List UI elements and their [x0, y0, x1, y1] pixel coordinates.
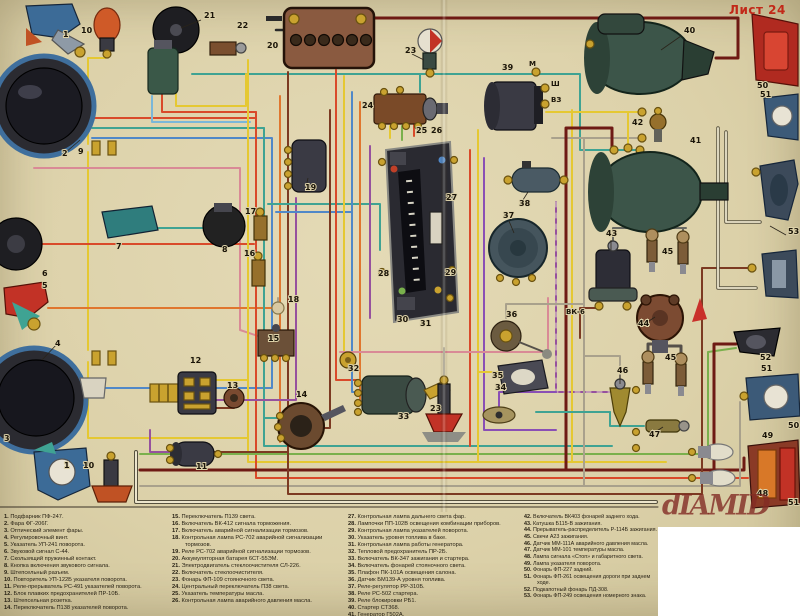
component-callout: 15 — [268, 334, 280, 343]
lamp50b-red-lens — [780, 448, 795, 500]
legend-item: 19. Реле РС-702 аварийной сигнализации т… — [172, 549, 344, 556]
ignition33-terminal — [355, 380, 362, 387]
component-callout: 2 — [62, 149, 68, 158]
component-callout: 38 — [519, 199, 531, 208]
plate-lamp53-terminal — [752, 168, 760, 176]
distributor44-body — [652, 340, 668, 353]
fuse12-element — [184, 378, 194, 386]
wire — [140, 458, 744, 470]
spark-plug45-tip — [680, 264, 686, 274]
switch14-hub — [290, 415, 312, 437]
legend-item: 24. Центральный переключатель П38 света. — [172, 584, 344, 591]
switch34-button — [496, 412, 503, 419]
legend-item: 43. Катушка Б115-В зажигания. — [524, 521, 662, 527]
headlight2-lens — [6, 68, 82, 144]
cluster-odometer — [430, 212, 442, 244]
battery-cell — [347, 35, 358, 46]
lamp50b-terminal — [633, 429, 640, 436]
component-callout: 23 — [430, 404, 441, 413]
switch15-knob — [272, 324, 280, 332]
spark-plug45-top — [646, 229, 658, 241]
legend-item: 36. Датчик БМ139-А уровня топлива. — [348, 577, 520, 584]
switch14-lever — [321, 405, 346, 421]
temp-sender47-tip — [679, 421, 689, 431]
component-callout: 43 — [606, 229, 617, 238]
legend-item: 2. Фара ФГ-206Г. — [4, 521, 166, 528]
coil43-terminal — [623, 302, 631, 310]
legend-item: 53. Фонарь ФП-249 освещения номерного зн… — [524, 593, 662, 599]
wire — [336, 70, 358, 380]
generator-cap — [588, 152, 614, 232]
coil43-hv-terminal — [608, 241, 618, 251]
relay39-terminal-vz — [541, 100, 549, 108]
socket13-pin — [230, 394, 238, 402]
starter-nose — [682, 40, 714, 80]
legend-item: 39. Реле блокировки РБ1. — [348, 598, 520, 605]
cluster-gauge-top — [390, 152, 406, 165]
wiring-diagram: 1102122202324394050514241193837252627282… — [0, 0, 800, 512]
lamp23-base — [423, 53, 436, 69]
spark-plug45 — [643, 362, 653, 384]
cluster-terminal — [451, 157, 458, 164]
bulb48-socket — [700, 472, 713, 484]
component-callout: 49 — [762, 431, 774, 440]
spark-plug45-top — [675, 353, 687, 365]
legend-item: 49. Лампа указателя поворота. — [524, 561, 662, 567]
sheet-title: Лист 24 — [729, 3, 786, 17]
legend-item: 34. Включатель фонарей стояночного света… — [348, 563, 520, 570]
lamp1b-bulb — [49, 459, 75, 485]
legend-item: 16. Включатель ВК-412 сигнала торможения… — [172, 521, 344, 528]
scanned-wiring-sheet: 1102122202324394050514241193837252627282… — [0, 0, 800, 616]
relay38-tab — [522, 161, 531, 168]
ignition33-terminal — [355, 400, 362, 407]
battery-cell — [291, 35, 302, 46]
wire — [726, 132, 760, 222]
legend-item: 3. Оптический элемент фары. — [4, 528, 166, 535]
legend-item: 32. Тепловой предохранитель ПР-2Б. — [348, 549, 520, 556]
lamp10-base — [100, 38, 114, 51]
switch24-body — [374, 94, 426, 124]
switch14-terminal — [277, 413, 284, 420]
legend-item: 46. Датчик ММ-111А аварийного давления м… — [524, 541, 662, 547]
component-callout: 3 — [4, 434, 10, 443]
headlight4-bulb — [80, 378, 106, 398]
relay38-terminal — [560, 176, 568, 184]
relay38-body — [512, 168, 560, 192]
legend-item: 42. Включатель ВК403 фонарей заднего ход… — [524, 514, 662, 520]
component-callout: 37 — [503, 211, 514, 220]
lamp10b-terminal — [107, 452, 115, 460]
cluster-warn-lamp — [391, 166, 398, 173]
legend-item: 5. Указатель УП-241 поворота. — [4, 542, 166, 549]
legend-item: 9. Штепсельный разъем. — [4, 570, 166, 577]
component-callout: 7 — [116, 242, 122, 251]
lamp1-housing — [26, 4, 80, 38]
component-callout: 39 — [502, 63, 514, 72]
battery-terminal — [289, 14, 299, 24]
lamp51-lens — [772, 106, 792, 126]
terminal-label: Ш — [551, 80, 560, 88]
spark-plug45-tip — [678, 386, 684, 396]
connector9 — [108, 141, 116, 155]
legend-item: 13. Штепсельная розетка. — [4, 598, 166, 605]
cluster-gauge-bottom — [397, 297, 415, 310]
legend-item: 23. Фонарь ФП-109 стояночного света. — [172, 577, 344, 584]
legend-column: 1. Подфарник ПФ-247.2. Фара ФГ-206Г.3. О… — [4, 514, 166, 612]
connector9 — [92, 141, 100, 155]
component-callout: 25 — [416, 126, 428, 135]
switch16-body — [252, 260, 265, 286]
cluster-warn-lamp — [399, 288, 406, 295]
component-callout: 50 — [788, 421, 800, 430]
generator-terminal — [624, 144, 632, 152]
lamp51b-terminal — [740, 392, 748, 400]
distributor44-tower — [669, 295, 679, 305]
lamp50-lens — [764, 32, 788, 70]
legend-item: 12. Блок плавких предохранителей ПР-10Б. — [4, 591, 166, 598]
lamp50b-terminal — [689, 475, 696, 482]
cluster-terminal — [447, 295, 454, 302]
component-callout: 13 — [227, 381, 238, 390]
cluster-terminal — [379, 159, 386, 166]
component-callout: 9 — [78, 147, 84, 156]
fuel-sender36-arm — [519, 342, 544, 352]
legend-item: 45. Свечи А23 зажигания. — [524, 534, 662, 540]
component-callout: 28 — [378, 269, 390, 278]
switch42-body — [650, 114, 666, 130]
connector9 — [108, 351, 116, 365]
terminal-label: М — [529, 60, 536, 68]
relay19-terminal — [285, 171, 292, 178]
headlight4-socket — [150, 384, 178, 402]
legend-item: 31. Контрольная лампа работы генератора. — [348, 542, 520, 549]
cluster-warn-lamp — [439, 157, 446, 164]
distributor44-center — [652, 310, 668, 326]
component-callout: 46 — [617, 366, 629, 375]
regulator37-terminal — [529, 275, 536, 282]
fuel-sender36-hub — [500, 330, 512, 342]
lamp50b-terminal — [633, 445, 640, 452]
switch15-terminal — [283, 355, 290, 362]
component-callout: 12 — [190, 356, 201, 365]
legend-item: 40. Стартер СТ368. — [348, 605, 520, 612]
component-callout: 16 — [244, 249, 256, 258]
switch22-knob — [236, 43, 246, 53]
lamp18-bulb — [272, 302, 284, 314]
switch15-terminal — [261, 355, 268, 362]
component-callout: 47 — [649, 430, 660, 439]
component-callout: 51 — [760, 90, 772, 99]
legend-item: 48. Лампа сигнала «Стоп» и габаритного с… — [524, 554, 662, 560]
switch24-terminal — [403, 123, 410, 130]
lamp23-terminal — [426, 69, 434, 77]
legend-item: 52. Подкапотный фонарь ПД-308. — [524, 587, 662, 593]
component-callout: 44 — [638, 319, 650, 328]
lamp10-dome — [94, 8, 120, 42]
component-callout: 45 — [662, 247, 674, 256]
component-callout: 17 — [245, 207, 256, 216]
spark-plug45-top — [642, 351, 654, 363]
component-callout: 30 — [397, 315, 409, 324]
plate-lamp53-lens — [770, 174, 788, 206]
component-callout: 41 — [690, 136, 702, 145]
component-callout: 5 — [42, 281, 48, 290]
component-callout: 52 — [760, 353, 771, 362]
battery-cell — [361, 35, 372, 46]
legend-item: 10. Повторитель УП-122Б указателя поворо… — [4, 577, 166, 584]
component-callout: 40 — [684, 26, 696, 35]
lamp23b-terminal — [440, 376, 448, 384]
wire — [584, 356, 620, 380]
legend-item: 17. Включатель аварийной сигнализации то… — [172, 528, 344, 535]
spark-plug45-tip — [645, 384, 651, 394]
lamp1-socket — [75, 47, 85, 57]
relay11-terminal — [215, 451, 222, 458]
component-callout: 6 — [42, 269, 48, 278]
horn-button8-mount — [214, 203, 232, 212]
switch24-terminal — [397, 87, 404, 94]
lamp50b-terminal — [633, 387, 640, 394]
component-callout: 32 — [348, 364, 359, 373]
component-callout: 51 — [761, 364, 773, 373]
cutout-patch — [658, 527, 800, 616]
legend-item: 4. Регулировочный винт. — [4, 535, 166, 542]
legend-item: 29. Контрольная лампа указателей поворот… — [348, 528, 520, 535]
fuse12-element — [200, 378, 210, 386]
legend-item: 44. Прерыватель-распределитель Р-114Б за… — [524, 527, 662, 533]
terminal-label: ВК-6 — [566, 308, 585, 316]
legend-item: 8. Кнопка включения звукового сигнала. — [4, 563, 166, 570]
legend-item: 7. Скользящий пружинный контакт. — [4, 556, 166, 563]
oil-sender46 — [610, 388, 630, 426]
battery-cell — [305, 35, 316, 46]
starter-solenoid — [598, 14, 644, 34]
relay11-terminal — [167, 457, 174, 464]
component-callout: 51 — [788, 498, 800, 507]
fuse32-center — [345, 357, 351, 363]
switch42-terminal — [655, 108, 662, 115]
component-callout: 31 — [420, 319, 432, 328]
component-callout: 18 — [288, 295, 300, 304]
horn6-center — [7, 235, 25, 253]
switch14-terminal — [275, 424, 282, 431]
legend-column: 15. Переключатель П139 света.16. Включат… — [172, 514, 344, 605]
component-callout: 45 — [665, 353, 677, 362]
wire — [176, 74, 246, 106]
spark-plug45 — [676, 364, 686, 386]
lamp52-lens — [746, 335, 766, 349]
watermark: dIAMID — [662, 489, 768, 522]
legend-item: 33. Включатель ВК-347 зажигания и старте… — [348, 556, 520, 563]
component-callout: 10 — [83, 461, 95, 470]
generator-shaft — [700, 183, 728, 200]
component-callout: 22 — [237, 21, 248, 30]
legend-item: 35. Плафон ПК-101А освещения салона. — [348, 570, 520, 577]
relay39-terminal-m — [532, 68, 540, 76]
relay19-terminal — [285, 147, 292, 154]
relay19-terminal — [285, 159, 292, 166]
bulb49-socket — [698, 446, 711, 458]
ignition33-terminal — [355, 390, 362, 397]
fuse12-element — [200, 392, 210, 400]
wiper-motor-body — [148, 48, 178, 94]
legend-item: 18. Контрольная лампа РС-702 аварийной с… — [172, 535, 344, 548]
legend-item: 21. Электродвигатель стеклоочистителя СЛ… — [172, 563, 344, 570]
legend-item: 11. Реле-прерыватель РС-491 указателей п… — [4, 584, 166, 591]
fuel-sender36-float — [542, 349, 552, 359]
wiper-motor-hub — [170, 24, 182, 36]
legend-column: 27. Контрольная лампа дальнего света фар… — [348, 514, 520, 616]
legend-item: 14. Переключатель П138 указателей поворо… — [4, 605, 166, 612]
component-callout: 4 — [55, 339, 61, 348]
component-callout: 35 — [492, 371, 504, 380]
wiper-motor-cap — [154, 40, 172, 49]
indicator5-socket — [28, 318, 40, 330]
switch14-terminal — [278, 435, 285, 442]
component-callout: 14 — [296, 390, 308, 399]
component-callout: 33 — [398, 412, 409, 421]
switch22-body — [210, 42, 236, 55]
switch15-terminal — [272, 355, 279, 362]
component-callout: 19 — [305, 183, 317, 192]
regulator37-terminal — [513, 279, 520, 286]
regulator37-terminal — [497, 275, 504, 282]
contact7-body — [102, 206, 158, 238]
legend-item: 27. Контрольная лампа дальнего света фар… — [348, 514, 520, 521]
switch24-knob — [437, 103, 448, 114]
battery-cell — [333, 35, 344, 46]
battery-lug — [266, 16, 282, 21]
wire — [358, 102, 360, 402]
legend-item: 47. Датчик ММ-101 температуры масла. — [524, 547, 662, 553]
distributor44-tower — [641, 295, 651, 305]
lamp10-terminal — [103, 50, 111, 58]
callout-leader — [770, 226, 786, 235]
lamp50-terminal — [638, 108, 646, 116]
generator-terminal — [610, 146, 618, 154]
legend-item: 1. Подфарник ПФ-247. — [4, 514, 166, 521]
plate-lamp53-lens — [772, 260, 786, 288]
legend-item: 25. Указатель температуры масла. — [172, 591, 344, 598]
component-callout: 34 — [495, 383, 507, 392]
ignition33-terminal — [355, 409, 362, 416]
switch24-shaft — [423, 98, 437, 120]
switch24-terminal — [379, 123, 386, 130]
spark-plug45 — [678, 242, 688, 264]
component-callout: 27 — [446, 193, 457, 202]
relay11-terminal — [167, 445, 174, 452]
relay19-terminal — [285, 183, 292, 190]
component-callout: 1 — [63, 30, 69, 39]
legend-item: 30. Указатель уровня топлива в баке. — [348, 535, 520, 542]
component-callout: 24 — [362, 101, 374, 110]
switch16-terminal — [254, 252, 262, 260]
legend-item: 28. Лампочки ПП-102В освещения комбинаци… — [348, 521, 520, 528]
component-callout: 23 — [405, 46, 416, 55]
component-callout: 42 — [632, 118, 643, 127]
lamp23b-lens — [426, 414, 462, 432]
lamp50-terminal — [638, 134, 646, 142]
fuse12-element — [184, 392, 194, 400]
lamp50b-terminal — [689, 449, 696, 456]
legend-item: 15. Переключатель П139 света. — [172, 514, 344, 521]
legend-item: 22. Включатель стеклоочистителя. — [172, 570, 344, 577]
fuse12-element — [184, 404, 210, 409]
switch24-terminal — [381, 89, 388, 96]
component-callout: 8 — [222, 245, 228, 254]
wire — [726, 132, 760, 222]
component-callout: 10 — [81, 26, 93, 35]
component-callout: 36 — [506, 310, 518, 319]
spark-plug45-top — [677, 231, 689, 243]
red-arrow — [692, 298, 707, 322]
battery-cell — [319, 35, 330, 46]
switch17-terminal — [256, 208, 264, 216]
legend-item: 37. Реле-регулятор РР-310Б. — [348, 584, 520, 591]
lamp51b-lens — [764, 385, 788, 409]
legend-item: 6. Звуковой сигнал С-44. — [4, 549, 166, 556]
component-callout: 21 — [204, 11, 216, 20]
component-callout: 50 — [757, 81, 769, 90]
battery-terminal — [356, 14, 366, 24]
switch24-terminal — [391, 123, 398, 130]
terminal-label: ВЗ — [551, 96, 561, 104]
switch17-body — [254, 216, 267, 240]
legend-column: 42. Включатель ВК403 фонарей заднего ход… — [524, 514, 662, 600]
relay38-terminal — [504, 176, 512, 184]
coil43-bracket — [589, 288, 637, 301]
regulator37-hub — [510, 240, 526, 256]
component-callout: 26 — [431, 126, 443, 135]
wire — [268, 204, 380, 250]
legend-item: 38. Реле РС-502 стартера. — [348, 591, 520, 598]
ignition33-face — [406, 378, 426, 412]
plate-lamp53-terminal — [748, 264, 756, 272]
legend-item: 20. Аккумуляторная батар­ея 6СТ-55ЭМ. — [172, 556, 344, 563]
lamp23b-base — [422, 432, 466, 442]
legend-item: 41. Генератор Г502А. — [348, 612, 520, 616]
legend-item: 26. Контрольная лампа аварийного давлени… — [172, 598, 344, 605]
headlight4-lens — [0, 360, 74, 436]
switch42-stem — [654, 129, 662, 142]
cluster-warn-lamp — [435, 287, 442, 294]
relay39-cap — [484, 82, 500, 130]
headlight2-glint — [18, 85, 42, 99]
legend-item: 50. Фонарь ФП-227 задний. — [524, 567, 662, 573]
coil43-terminal — [595, 302, 603, 310]
component-callout: 29 — [445, 268, 457, 277]
component-callout: 11 — [196, 462, 208, 471]
starter-terminal — [586, 40, 594, 48]
lamp10b-stem — [104, 460, 118, 486]
lamp10b-lens — [92, 486, 132, 502]
relay39-terminal-sh — [541, 84, 549, 92]
spark-plug45-tip — [649, 262, 655, 272]
dome-light35-lens — [511, 369, 535, 385]
component-callout: 20 — [267, 41, 279, 50]
wire — [352, 92, 358, 392]
spark-plug45 — [647, 240, 657, 262]
legend-item: 51. Фонарь ФП-261 освещения дороги при з… — [524, 574, 662, 586]
component-callout: 53 — [788, 227, 799, 236]
component-callout: 1 — [64, 461, 70, 470]
connector9 — [92, 351, 100, 365]
